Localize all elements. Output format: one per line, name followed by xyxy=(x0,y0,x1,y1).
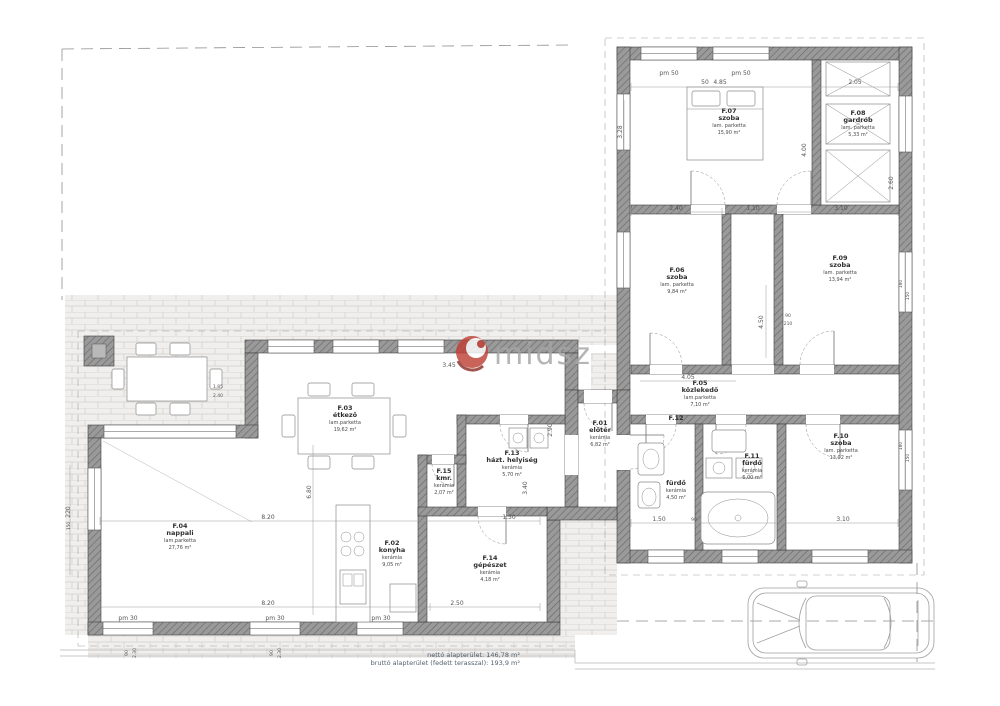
dim-label: 2.30 xyxy=(132,648,138,658)
laundry-machines xyxy=(509,428,548,448)
svg-text:4,50 m²: 4,50 m² xyxy=(666,495,686,501)
dim-label: 3.28 xyxy=(617,125,624,139)
svg-text:gardrób: gardrób xyxy=(843,116,873,124)
dim-label: 150 xyxy=(905,292,911,301)
svg-text:7,10 m²: 7,10 m² xyxy=(690,402,710,408)
svg-text:lam. parketta: lam. parketta xyxy=(841,125,875,131)
dim-label: 1.50 xyxy=(652,516,666,523)
dim-label: 2.40 xyxy=(213,393,223,399)
svg-text:kerámia: kerámia xyxy=(666,487,686,494)
bathroom-small-fixtures xyxy=(638,443,664,508)
svg-text:szoba: szoba xyxy=(830,439,851,447)
bathroom-large-fixtures xyxy=(701,430,775,544)
svg-text:lam.parketta: lam.parketta xyxy=(684,395,716,401)
svg-text:szoba: szoba xyxy=(718,114,739,122)
svg-text:kerámia: kerámia xyxy=(742,467,762,474)
svg-text:lam.parketta: lam.parketta xyxy=(329,420,361,426)
dim-label: 6.80 xyxy=(306,485,313,499)
svg-text:étkező: étkező xyxy=(333,410,358,419)
dim-label: 2.50 xyxy=(450,600,464,607)
dim-label: 1.85 xyxy=(213,384,223,390)
dim-label: 1.10 xyxy=(746,205,760,212)
room-label-f12: F.12fürdőkerámia4,50 m² xyxy=(666,414,687,501)
room-label-f09: F.09szobalam. parketta13,94 m² xyxy=(823,254,857,283)
svg-text:szoba: szoba xyxy=(666,273,687,281)
dim-label: 90 xyxy=(691,517,697,523)
dim-label: 50 xyxy=(701,79,709,86)
dim-label: 3.10 xyxy=(834,205,848,212)
svg-text:lam.parketta: lam.parketta xyxy=(164,538,196,544)
dim-label: 2.60 xyxy=(888,176,895,190)
room-label-f11: F.11fürdőkerámia6,00 m² xyxy=(742,452,763,481)
svg-text:27,76 m²: 27,76 m² xyxy=(169,545,192,551)
dim-label: 2.30 xyxy=(277,648,283,658)
dim-label: 180 xyxy=(898,442,904,451)
dim-label: pm 50 xyxy=(659,70,678,77)
svg-text:konyha: konyha xyxy=(379,546,406,554)
room-label-f01: F.01előtérkerámia6,82 m² xyxy=(589,419,612,448)
svg-text:előtér: előtér xyxy=(589,425,612,434)
svg-text:2,07 m²: 2,07 m² xyxy=(434,490,454,496)
dim-label: 220 xyxy=(65,506,72,518)
svg-text:13,94 m²: 13,94 m² xyxy=(829,277,852,283)
dim-label: pm 30 xyxy=(265,615,284,622)
svg-text:6,82 m²: 6,82 m² xyxy=(590,442,610,448)
room-label-f06: F.06szobalam. parketta9,84 m² xyxy=(660,266,694,295)
dim-label: 4.85 xyxy=(713,79,727,86)
room-label-f15: F.15kmr.kerámia2,07 m² xyxy=(434,467,454,496)
svg-text:kerámia: kerámia xyxy=(590,434,610,441)
svg-text:nappali: nappali xyxy=(166,529,193,537)
kitchen-counter xyxy=(336,505,416,622)
svg-text:lam. parketta: lam. parketta xyxy=(824,448,858,454)
svg-text:fürdő: fürdő xyxy=(666,478,686,487)
svg-text:13,02 m²: 13,02 m² xyxy=(830,455,853,461)
svg-text:5,70 m²: 5,70 m² xyxy=(502,472,522,478)
car-top-view xyxy=(748,581,934,665)
dim-label: 210 xyxy=(784,321,793,327)
dim-label: 4.50 xyxy=(758,315,765,329)
svg-text:9,05 m²: 9,05 m² xyxy=(382,562,402,568)
svg-text:lam. parketta: lam. parketta xyxy=(823,270,857,276)
dim-label: 2.40 xyxy=(669,205,683,212)
room-label-f04: F.04nappalilam.parketta27,76 m² xyxy=(164,522,196,551)
svg-text:15,90 m²: 15,90 m² xyxy=(718,130,741,136)
dining-table xyxy=(282,383,406,469)
dim-label: 150 xyxy=(905,454,911,463)
svg-text:kerámia: kerámia xyxy=(434,482,454,489)
dim-label: 2.90 xyxy=(547,423,554,437)
svg-text:kerámia: kerámia xyxy=(382,554,402,561)
dim-label: 90 xyxy=(269,650,275,656)
svg-text:kerámia: kerámia xyxy=(502,464,522,471)
dim-label: 1.50 xyxy=(502,514,516,521)
dim-label: 2.05 xyxy=(848,79,862,86)
dim-label: 180 xyxy=(898,280,904,289)
svg-text:19,62 m²: 19,62 m² xyxy=(334,427,357,433)
dim-label: 3.45 xyxy=(442,362,456,369)
gross-area-text: bruttó alapterület (fedett terasszal): 1… xyxy=(371,659,521,667)
room-label-f14: F.14gépészetkerámia4,18 m² xyxy=(473,554,506,583)
floor-plan-page: 4.85 2.05 50 pm 50 pm 50 2.40 1.10 3.10 … xyxy=(0,0,1000,706)
dim-label: 4.00 xyxy=(801,143,808,157)
net-area-text: nettó alapterület: 146,78 m² xyxy=(427,651,520,659)
svg-text:lam. parketta: lam. parketta xyxy=(660,282,694,288)
svg-text:9,84 m²: 9,84 m² xyxy=(667,289,687,295)
floor-plan-drawing: 4.85 2.05 50 pm 50 pm 50 2.40 1.10 3.10 … xyxy=(0,0,1000,706)
room-label-f13: F.13házt. helyiségkerámia5,70 m² xyxy=(486,449,538,478)
room-label-f05: F.05közlekedőlam.parketta7,10 m² xyxy=(682,379,719,408)
svg-text:F.12: F.12 xyxy=(669,414,684,422)
svg-text:kmr.: kmr. xyxy=(436,474,452,482)
watermark-text: midsz xyxy=(494,337,592,372)
svg-text:szoba: szoba xyxy=(829,261,850,269)
svg-text:lam. parketta: lam. parketta xyxy=(712,123,746,129)
svg-text:4,18 m²: 4,18 m² xyxy=(480,577,500,583)
dim-label: 150 xyxy=(66,522,72,531)
svg-text:közlekedő: közlekedő xyxy=(682,385,719,394)
svg-text:fürdő: fürdő xyxy=(742,458,762,467)
dim-label: 90 xyxy=(785,313,791,319)
svg-text:6,00 m²: 6,00 m² xyxy=(742,475,762,481)
svg-text:gépészet: gépészet xyxy=(473,561,506,569)
watermark-logo: midsz xyxy=(456,336,592,372)
svg-text:házt. helyiség: házt. helyiség xyxy=(486,456,538,464)
svg-text:5,33 m²: 5,33 m² xyxy=(848,132,868,138)
svg-text:kerámia: kerámia xyxy=(480,569,500,576)
dim-label: pm 30 xyxy=(371,615,390,622)
room-label-f10: F.10szobalam. parketta13,02 m² xyxy=(824,432,858,461)
room-label-f02: F.02konyhakerámia9,05 m² xyxy=(379,539,406,568)
dim-label: 3.40 xyxy=(522,481,529,495)
dim-label: pm 30 xyxy=(118,615,137,622)
dim-label: 90 xyxy=(124,650,130,656)
dim-label: 8.20 xyxy=(261,514,275,521)
dim-label: 8.20 xyxy=(261,600,275,607)
dim-label: 3.10 xyxy=(836,516,850,523)
dim-label: pm 50 xyxy=(731,70,750,77)
